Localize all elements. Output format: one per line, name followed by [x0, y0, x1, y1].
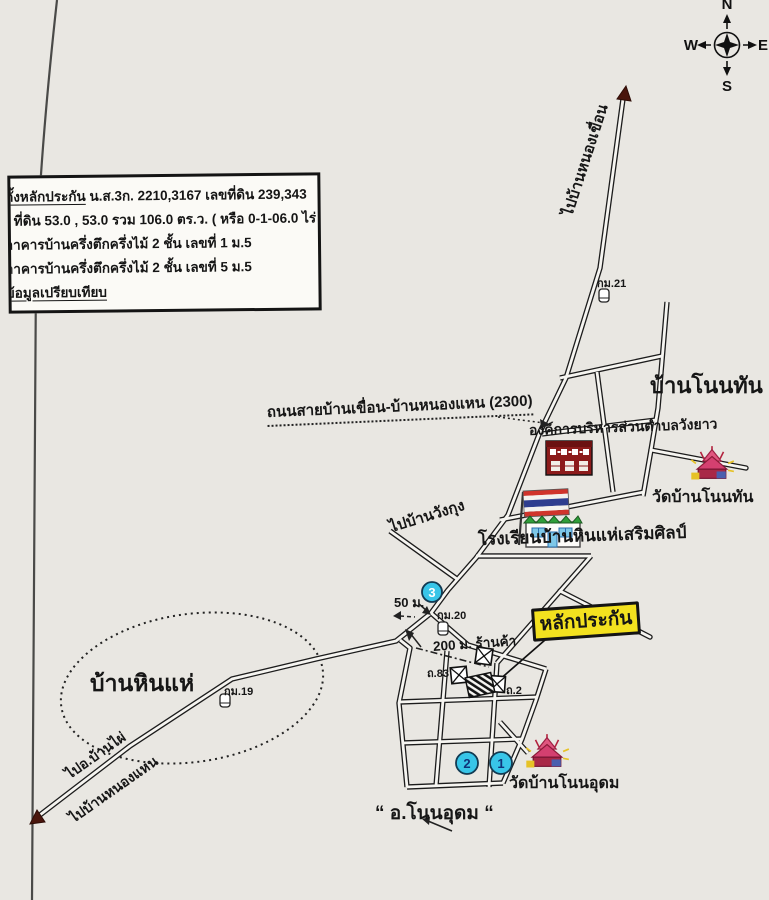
km19-label: กม.19 — [224, 682, 253, 700]
amphoe-non-udom-label: “ อ.โนนอุดม “ — [375, 798, 494, 828]
street-2-label: ถ.2 — [506, 681, 522, 699]
wat-non-udom-label: วัดบ้านโนนอุดม — [509, 771, 619, 796]
wat-non-udom-icon — [526, 734, 569, 767]
map-graphics: 3 2 1 N S W E — [0, 0, 769, 900]
village-label-ban-hin-hae: บ้านหินแห่ — [90, 666, 194, 702]
compass-west-label: W — [684, 37, 699, 54]
street-83-label: ถ.83 — [427, 664, 449, 682]
km20-label: กม.20 — [437, 606, 466, 624]
info-line-2: ที่ดิน 53.0 , 53.0 รวม 106.0 ตร.ว. ( หรื… — [14, 206, 314, 233]
info-line-1-heading: ตั้งหลักประกัน — [7, 189, 85, 205]
thai-flag-icon — [523, 489, 569, 517]
point-marker-3: 3 — [422, 582, 442, 602]
point-marker-1-label: 1 — [497, 756, 504, 771]
road-end-arrow-north — [617, 86, 631, 101]
km21-label: กม.21 — [597, 274, 626, 292]
point-marker-2: 2 — [456, 752, 478, 774]
point-marker-2-label: 2 — [463, 756, 470, 771]
page-edge — [32, 0, 57, 900]
info-line-1: ตั้งหลักประกัน น.ส.3ก. 2210,3167 เลขที่ด… — [7, 182, 313, 209]
scanned-map-page: 3 2 1 N S W E ตั้งหลักประกัน น.ส.3ก. 221… — [0, 0, 769, 900]
compass-north-label: N — [722, 0, 733, 13]
compass-south-label: S — [722, 78, 732, 95]
info-line-4: อาคารบ้านครึ่งตึกครึ่งไม้ 2 ชั้น เลขที่ … — [7, 254, 314, 281]
info-line-3: อาคารบ้านครึ่งตึกครึ่งไม้ 2 ชั้น เลขที่ … — [7, 230, 314, 257]
village-label-ban-non-than: บ้านโนนทัน “ — [650, 368, 769, 403]
compass-rose-icon: N S W E — [684, 0, 768, 95]
distance-50m-label: 50 ม. — [394, 592, 424, 613]
wat-non-than-label: วัดบ้านโนนทัน — [652, 485, 753, 510]
point-marker-3-label: 3 — [428, 585, 435, 600]
info-line-1-detail: น.ส.3ก. 2210,3167 เลขที่ดิน 239,343 — [86, 187, 307, 204]
info-line-5: ข้อมูลเปรียบเทียบ — [7, 278, 314, 305]
collateral-building-icon — [465, 673, 495, 698]
sao-office-icon — [546, 441, 592, 475]
property-info-box: ตั้งหลักประกัน น.ส.3ก. 2210,3167 เลขที่ด… — [7, 172, 321, 313]
info-line-5-heading: ข้อมูลเปรียบเทียบ — [7, 285, 107, 301]
compass-east-label: E — [758, 37, 768, 54]
